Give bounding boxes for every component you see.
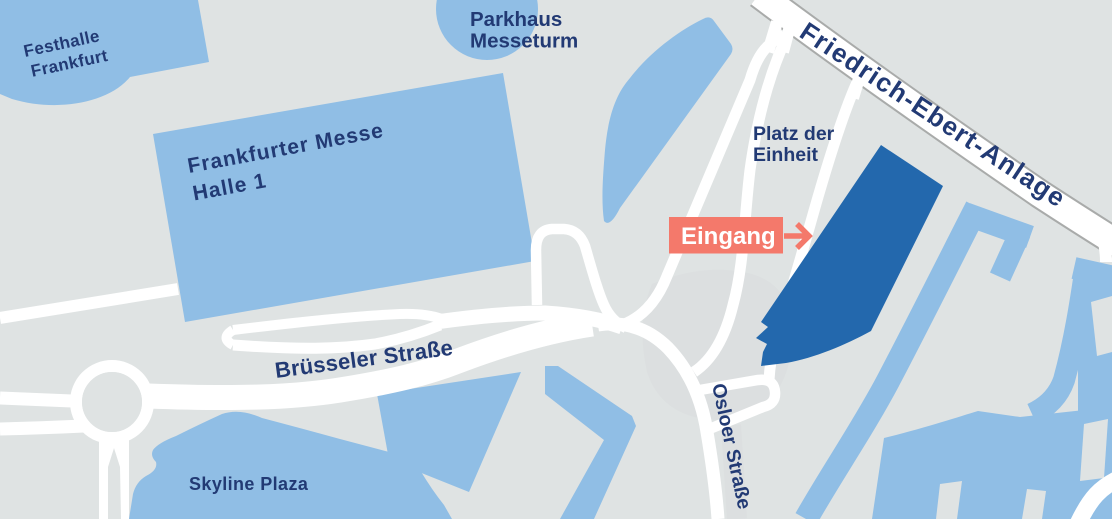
svg-text:ParkhausMesseturm: ParkhausMesseturm <box>470 8 578 53</box>
svg-text:Skyline Plaza: Skyline Plaza <box>189 474 309 494</box>
svg-text:Eingang: Eingang <box>681 223 776 250</box>
